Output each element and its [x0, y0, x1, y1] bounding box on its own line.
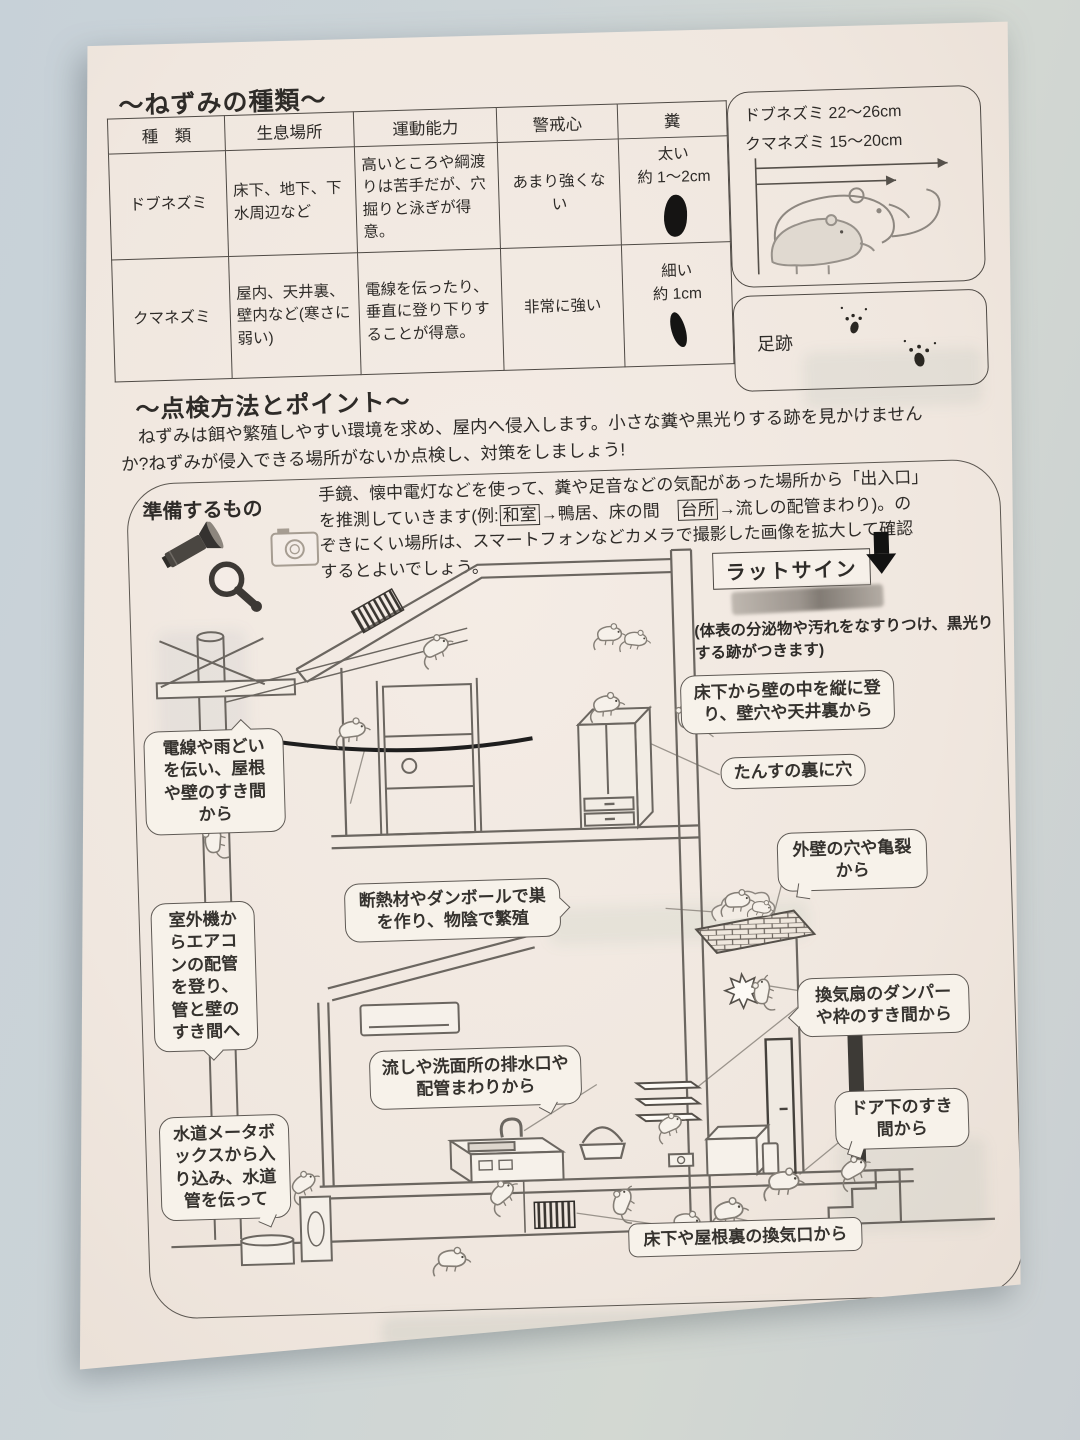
- paw-print: [904, 339, 937, 368]
- boxed-daidokoro: 台所: [677, 498, 718, 520]
- callout-text: 断熱材やダンボールで巣を作り、物陰で繁殖: [358, 886, 545, 932]
- bucket: [580, 1127, 625, 1159]
- ac-unit: [360, 1003, 459, 1036]
- callout-ac-pipe: 室外機からエアコンの配管を登り、管と壁のすき間へ: [150, 901, 258, 1053]
- cell-habitat: 床下、地下、下水周辺など: [225, 147, 357, 257]
- table-row-dobunezumi: ドブネズミ 床下、地下、下水周辺など 高いところや綱渡りは苦手だが、穴掘りと泳ぎ…: [108, 136, 730, 260]
- cell-ability: 電線を伝ったり、垂直に登り下りすることが得意。: [358, 248, 505, 374]
- droppings-length: 約 1cm: [629, 282, 726, 307]
- cell-wariness: 非常に強い: [500, 245, 625, 371]
- cell-droppings: 太い 約 1〜2cm: [618, 136, 730, 245]
- water-meter-box: [300, 1196, 332, 1261]
- col-header-ability: 運動能力: [353, 108, 497, 147]
- size-comparison-box: ドブネズミ 22〜26cm クマネズミ 15〜20cm: [726, 85, 986, 288]
- photo-background: 〜ねずみの種類〜 種 類 生息場所 運動能力 警戒心 糞 ドブネズミ 床下、地下…: [0, 0, 1080, 1440]
- droppings-size: 細い: [628, 259, 725, 284]
- footprints-label: 足跡: [756, 329, 793, 356]
- cell-droppings: 細い 約 1cm: [621, 242, 734, 367]
- method-text: →鴨居、床の間: [540, 500, 677, 523]
- callout-exterior-cracks: 外壁の穴や亀裂から: [776, 829, 928, 892]
- col-header-type: 種 類: [107, 116, 225, 154]
- planter: [241, 1235, 294, 1266]
- callout-text: 外壁の穴や亀裂から: [792, 837, 912, 881]
- rat-types-table: 種 類 生息場所 運動能力 警戒心 糞 ドブネズミ 床下、地下、下水周辺など 高…: [107, 100, 735, 382]
- roof-vent: [352, 589, 404, 633]
- callout-text: 流しや洗面所の排水口や配管まわりから: [382, 1053, 569, 1099]
- dropping-illustration: [663, 194, 688, 237]
- wardrobe: [578, 708, 653, 829]
- callout-text: ドア下のすき間から: [850, 1096, 953, 1140]
- flyer-paper: 〜ねずみの種類〜 種 類 生息場所 運動能力 警戒心 糞 ドブネズミ 床下、地下…: [0, 0, 1080, 1440]
- paper-shadow-wrap: 〜ねずみの種類〜 種 類 生息場所 運動能力 警戒心 糞 ドブネズミ 床下、地下…: [0, 0, 1080, 1440]
- callout-water-meter: 水道メータボックスから入り込み、水道管を伝って: [159, 1114, 292, 1222]
- sliding-door: [377, 678, 482, 835]
- dropping-illustration: [667, 310, 690, 348]
- callout-text: 水道メータボックスから入り込み、水道管を伝って: [173, 1122, 277, 1211]
- col-header-droppings: 糞: [617, 101, 727, 139]
- cell-type: クマネズミ: [112, 257, 233, 382]
- callout-text: 電線や雨どいを伝い、屋根や壁のすき間から: [162, 736, 266, 824]
- boxed-washitsu: 和室: [499, 503, 540, 525]
- small-rat: [771, 214, 875, 276]
- callout-text: たんすの裏に穴: [733, 760, 852, 783]
- cell-type: ドブネズミ: [108, 151, 228, 260]
- underfloor-vent: [534, 1201, 575, 1228]
- col-header-habitat: 生息場所: [224, 112, 354, 151]
- callout-text: 換気扇のダンパーや枠のすき間から: [815, 982, 952, 1027]
- callout-ventilation-fan: 換気扇のダンパーや枠のすき間から: [797, 973, 971, 1037]
- footprints-box: 足跡: [732, 289, 989, 392]
- callout-wall-cavity: 床下から壁の中を縦に登り、壁穴や天井裏から: [680, 670, 896, 735]
- callout-power-lines: 電線や雨どいを伝い、屋根や壁のすき間から: [143, 728, 286, 836]
- callout-sink-drains: 流しや洗面所の排水口や配管まわりから: [369, 1045, 583, 1110]
- droppings-size: 太い: [625, 142, 722, 167]
- callout-wardrobe-hole: たんすの裏に穴: [720, 753, 866, 790]
- col-header-wariness: 警戒心: [496, 104, 618, 143]
- steps: [827, 1170, 901, 1224]
- footprints-illustration: [814, 294, 977, 387]
- callout-text: 室外機からエアコンの配管を登り、管と壁のすき間へ: [168, 909, 240, 1042]
- table-row-kumanezumi: クマネズミ 屋内、天井裏、壁内など(寒さに弱い) 電線を伝ったり、垂直に登り下り…: [112, 242, 734, 382]
- callout-text: 床下や屋根裏の換気口から: [643, 1224, 847, 1249]
- callout-under-door: ドア下のすき間から: [834, 1087, 970, 1150]
- boxes: [668, 1125, 778, 1176]
- cell-ability: 高いところや綱渡りは苦手だが、穴掘りと泳ぎが得意。: [354, 143, 500, 253]
- cell-wariness: あまり強くない: [497, 139, 621, 249]
- paw-print: [841, 306, 868, 335]
- callout-text: 床下から壁の中を縦に登り、壁穴や天井裏から: [693, 678, 880, 725]
- rat-size-illustration: [739, 148, 973, 280]
- flyer-content: 〜ねずみの種類〜 種 類 生息場所 運動能力 警戒心 糞 ドブネズミ 床下、地下…: [104, 46, 1033, 1402]
- cell-habitat: 屋内、天井裏、壁内など(寒さに弱い): [229, 253, 362, 379]
- droppings-length: 約 1〜2cm: [626, 165, 723, 190]
- callout-insulation-nest: 断熱材やダンボールで巣を作り、物陰で繁殖: [344, 878, 562, 943]
